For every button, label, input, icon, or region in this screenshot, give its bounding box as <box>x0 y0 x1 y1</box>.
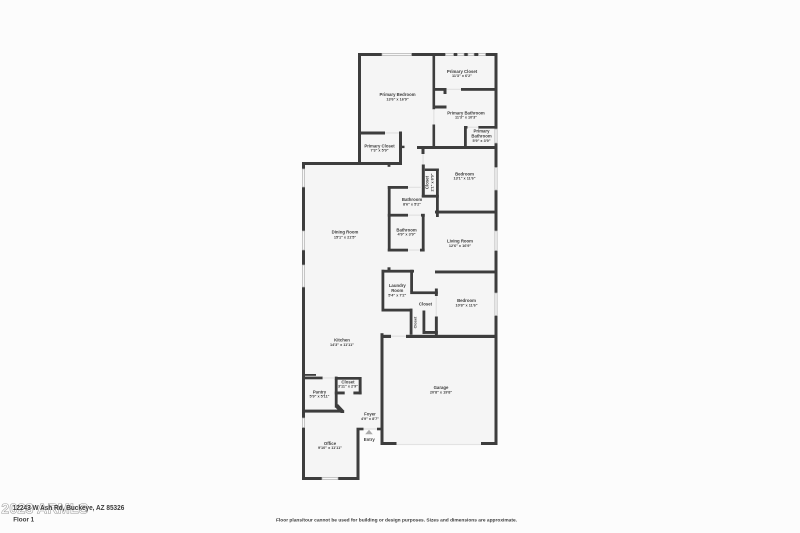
svg-text:11'3" x 10'3": 11'3" x 10'3" <box>455 116 477 120</box>
svg-text:Floor 1: Floor 1 <box>13 517 34 524</box>
svg-text:Entry: Entry <box>364 437 376 442</box>
svg-text:15'1" x 21'5": 15'1" x 21'5" <box>334 235 356 239</box>
svg-text:9'10" x 11'11": 9'10" x 11'11" <box>318 446 342 450</box>
svg-text:11'3" x 6'2": 11'3" x 6'2" <box>452 74 472 78</box>
svg-text:Office: Office <box>324 441 337 446</box>
svg-text:Floor plans/tour cannot be use: Floor plans/tour cannot be used for buil… <box>276 518 517 524</box>
svg-text:Closet: Closet <box>414 316 418 328</box>
svg-text:14'3" x 11'11": 14'3" x 11'11" <box>330 343 354 347</box>
svg-text:Bedroom: Bedroom <box>457 298 476 303</box>
svg-text:Room: Room <box>391 288 403 293</box>
svg-text:4'9" x 3'9": 4'9" x 3'9" <box>397 233 415 237</box>
svg-text:Living Room: Living Room <box>447 238 473 243</box>
svg-text:3'11" x 2'9": 3'11" x 2'9" <box>338 384 358 388</box>
svg-text:Garage: Garage <box>434 385 449 390</box>
svg-text:Kitchen: Kitchen <box>334 338 350 343</box>
svg-text:10'8" x 11'6": 10'8" x 11'6" <box>455 303 477 307</box>
svg-text:8'6" x 5'2": 8'6" x 5'2" <box>403 202 421 206</box>
svg-text:4'9" x 8'7": 4'9" x 8'7" <box>361 417 379 421</box>
svg-text:Closet: Closet <box>425 175 430 189</box>
svg-text:5'4" x 7'2": 5'4" x 7'2" <box>388 293 406 297</box>
svg-text:Closet: Closet <box>419 301 433 306</box>
svg-text:Primary Bathroom: Primary Bathroom <box>447 110 485 115</box>
svg-text:5'9" x 5'11": 5'9" x 5'11" <box>310 395 330 399</box>
svg-text:7'3" x 5'9": 7'3" x 5'9" <box>370 149 388 153</box>
svg-text:Bathroom: Bathroom <box>396 227 416 232</box>
svg-text:12'6" x 16'9": 12'6" x 16'9" <box>449 244 471 248</box>
svg-text:Bedroom: Bedroom <box>455 171 474 176</box>
svg-text:Bathroom: Bathroom <box>471 134 491 139</box>
svg-text:20'8" x 19'8": 20'8" x 19'8" <box>430 390 452 394</box>
svg-text:13'1" x 11'6": 13'1" x 11'6" <box>453 177 475 181</box>
svg-text:Dining Room: Dining Room <box>332 229 359 234</box>
svg-text:2'1" x 8'9": 2'1" x 8'9" <box>430 173 434 191</box>
svg-text:12243 W Ash Rd, Buckeye, AZ 85: 12243 W Ash Rd, Buckeye, AZ 85326 <box>13 505 125 512</box>
svg-text:Primary Closet: Primary Closet <box>447 69 478 74</box>
svg-text:Foyer: Foyer <box>364 412 376 417</box>
svg-text:5'9" x 3'9": 5'9" x 3'9" <box>472 139 490 143</box>
svg-text:Primary Closet: Primary Closet <box>364 143 395 148</box>
svg-text:Pantry: Pantry <box>313 389 327 394</box>
svg-text:13'6" x 16'9": 13'6" x 16'9" <box>386 97 408 101</box>
